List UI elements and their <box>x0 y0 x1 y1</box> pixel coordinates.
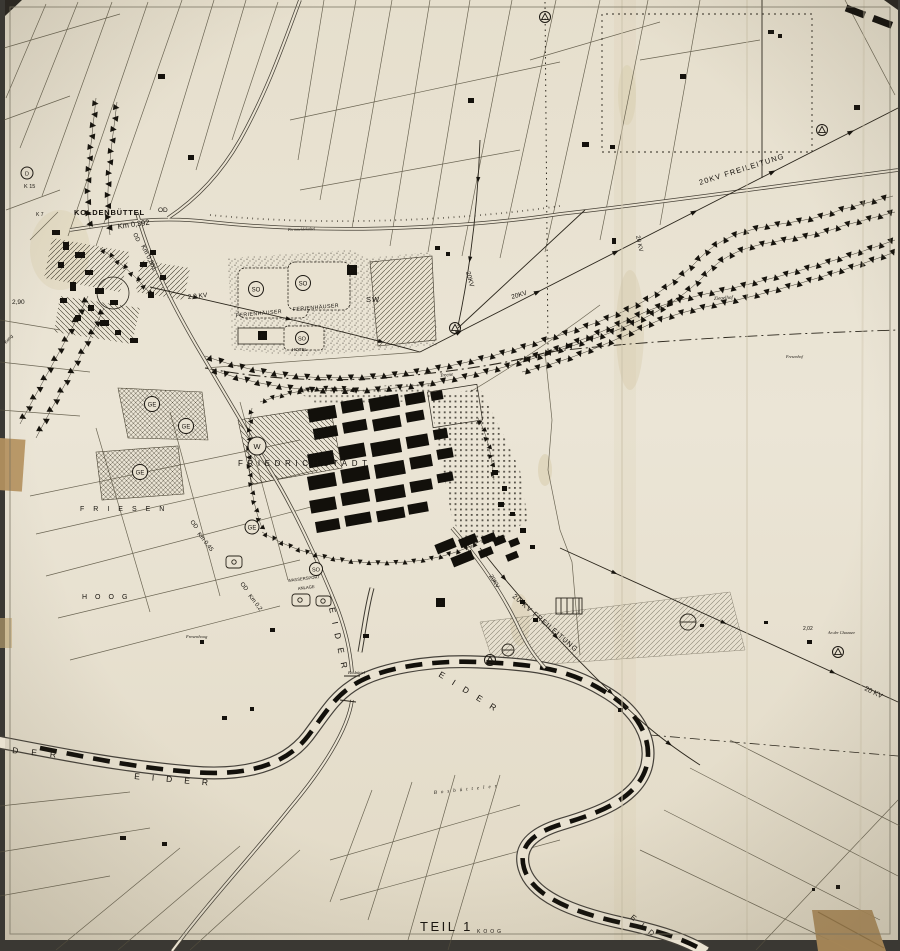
scanned-map-photo: SO SO SO SO GE GE GE GE W D P P P KOLDEN… <box>0 0 900 951</box>
map-canvas: SO SO SO SO GE GE GE GE W D P P P KOLDEN… <box>0 0 900 951</box>
map-paper: SO SO SO SO GE GE GE GE W D P P P KOLDEN… <box>0 0 900 951</box>
paper-artifacts <box>0 0 898 951</box>
